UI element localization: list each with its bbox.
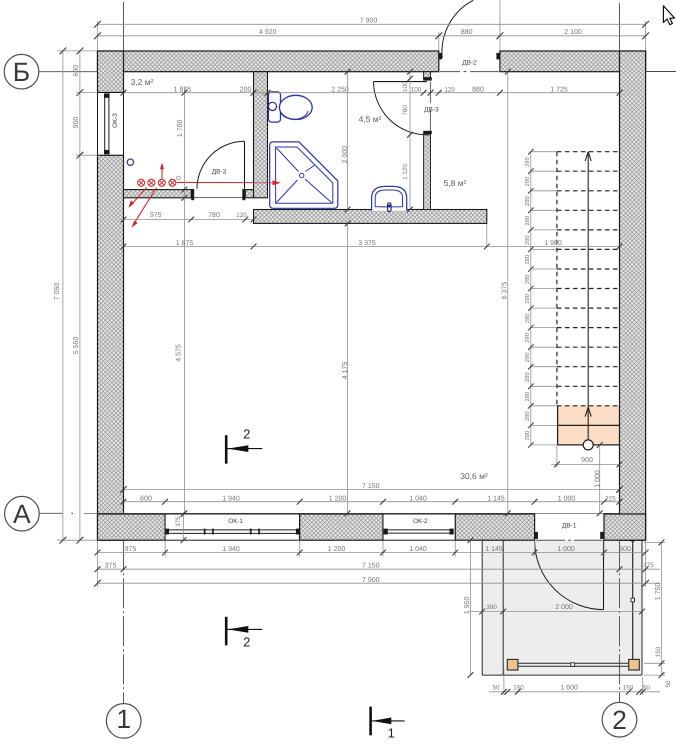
svg-text:280: 280 [524,216,531,226]
svg-text:7 050: 7 050 [54,283,61,301]
svg-text:7 150: 7 150 [362,483,380,490]
svg-text:5,8 м²: 5,8 м² [444,178,467,188]
svg-text:600: 600 [140,495,152,502]
svg-text:ДВ-2: ДВ-2 [462,59,477,66]
svg-text:50: 50 [643,684,651,691]
svg-text:1: 1 [116,704,131,734]
svg-text:375: 375 [105,563,117,570]
svg-text:1 940: 1 940 [222,495,240,502]
svg-text:2 000: 2 000 [555,604,573,611]
svg-text:5 550: 5 550 [73,336,80,354]
svg-text:200: 200 [240,86,252,93]
svg-text:1 940: 1 940 [222,546,240,553]
svg-text:2 000: 2 000 [342,146,349,164]
svg-text:30,6 м²: 30,6 м² [460,471,488,481]
svg-text:780: 780 [208,212,220,219]
svg-text:6 375: 6 375 [502,282,509,300]
svg-text:1 600: 1 600 [560,684,578,691]
svg-text:100: 100 [411,87,422,94]
svg-text:280: 280 [524,157,531,167]
svg-text:1 980: 1 980 [544,240,562,247]
svg-text:280: 280 [524,255,531,265]
svg-text:900: 900 [581,457,593,464]
svg-text:375: 375 [175,516,182,527]
svg-text:ОК-3: ОК-3 [112,113,119,128]
svg-text:1 145: 1 145 [487,495,505,502]
svg-text:600: 600 [619,546,631,553]
svg-text:280: 280 [524,411,531,421]
svg-text:ОК-2: ОК-2 [413,518,428,525]
svg-text:880: 880 [461,29,473,36]
svg-text:900: 900 [73,116,80,128]
svg-text:А: А [13,499,31,529]
svg-text:4 575: 4 575 [175,344,182,362]
svg-text:ДВ-3: ДВ-3 [424,106,439,113]
svg-text:280: 280 [524,274,531,284]
svg-text:2: 2 [243,635,250,650]
svg-text:880: 880 [472,86,484,93]
svg-text:1 725: 1 725 [550,86,568,93]
svg-text:1 875: 1 875 [174,86,192,93]
svg-text:150: 150 [513,684,524,691]
svg-text:225: 225 [605,495,616,502]
svg-text:50: 50 [665,680,672,688]
svg-text:50: 50 [492,684,500,691]
svg-text:1 000: 1 000 [557,546,575,553]
svg-text:100: 100 [402,81,409,92]
svg-text:120: 120 [444,87,455,94]
svg-text:1: 1 [388,726,395,741]
svg-text:3 375: 3 375 [358,240,376,247]
svg-text:1 120: 1 120 [402,164,409,180]
svg-text:280: 280 [524,353,531,363]
svg-text:280: 280 [524,392,531,402]
svg-text:280: 280 [524,431,531,441]
svg-text:1 145: 1 145 [485,546,503,553]
svg-text:600: 600 [73,65,80,77]
svg-text:ОК-1: ОК-1 [228,518,243,525]
svg-text:2 250: 2 250 [331,86,349,93]
svg-text:280: 280 [524,313,531,323]
svg-text:975: 975 [150,212,162,219]
svg-text:1 000: 1 000 [594,470,601,488]
svg-text:120: 120 [236,212,247,219]
svg-text:7 900: 7 900 [362,577,380,584]
svg-text:4 920: 4 920 [259,29,277,36]
svg-text:300: 300 [486,604,497,611]
svg-text:ДВ-1: ДВ-1 [562,523,577,530]
svg-text:1 040: 1 040 [409,546,427,553]
svg-text:280: 280 [524,372,531,382]
svg-text:1 200: 1 200 [329,495,347,502]
svg-text:1 750: 1 750 [655,583,662,601]
svg-text:3,2 м²: 3,2 м² [131,77,154,87]
svg-text:975: 975 [125,546,137,553]
svg-text:7 900: 7 900 [360,17,378,24]
svg-text:4 175: 4 175 [342,362,349,380]
svg-text:1 700: 1 700 [177,119,184,137]
svg-text:ДВ-3: ДВ-3 [212,169,227,176]
svg-text:1 950: 1 950 [464,596,471,614]
svg-text:1 200: 1 200 [328,546,346,553]
svg-text:1 000: 1 000 [558,495,576,502]
svg-text:780: 780 [402,105,409,116]
svg-text:280: 280 [524,333,531,343]
svg-text:1 040: 1 040 [409,495,427,502]
svg-text:2: 2 [243,427,250,442]
svg-text:375: 375 [643,562,654,569]
svg-text:4,5 м²: 4,5 м² [359,114,382,124]
svg-text:280: 280 [524,196,531,206]
svg-text:2 100: 2 100 [564,29,582,36]
svg-text:2: 2 [612,705,627,735]
svg-text:280: 280 [524,177,531,187]
svg-text:150: 150 [655,646,662,657]
svg-text:280: 280 [524,235,531,245]
svg-text:Б: Б [13,57,30,87]
svg-text:7 150: 7 150 [362,563,380,570]
svg-text:280: 280 [524,294,531,304]
svg-text:150: 150 [623,684,634,691]
